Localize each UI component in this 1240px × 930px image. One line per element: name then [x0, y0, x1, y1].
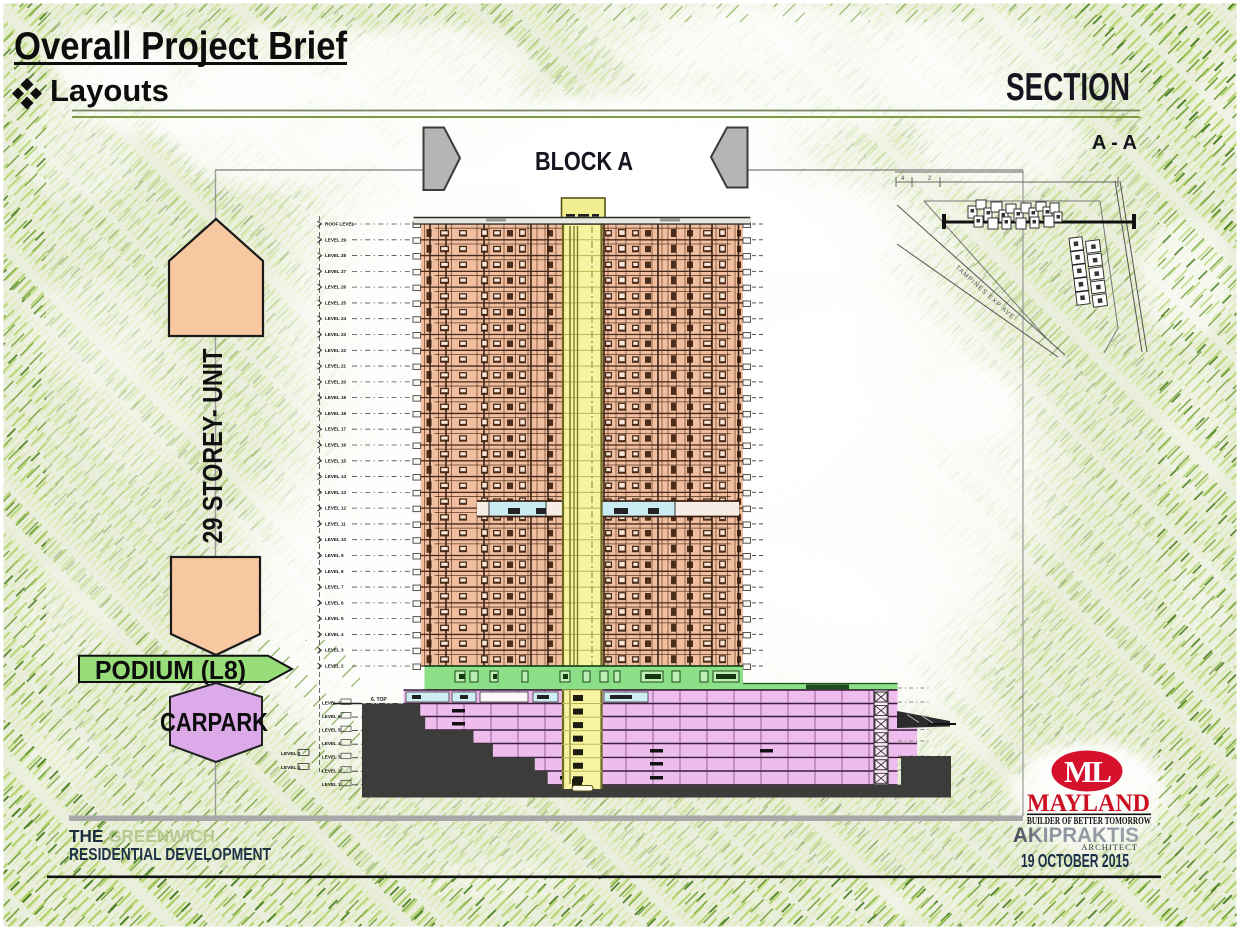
svg-text:LEVEL 4: LEVEL 4: [325, 632, 344, 637]
svg-text:LEVEL 26: LEVEL 26: [325, 285, 347, 290]
svg-text:ML: ML: [1064, 754, 1111, 789]
svg-text:6. TOP: 6. TOP: [371, 697, 387, 703]
svg-text:LEVEL 14: LEVEL 14: [325, 474, 347, 479]
svg-text:LEVEL 12: LEVEL 12: [325, 506, 347, 511]
svg-text:LEVEL 5: LEVEL 5: [325, 616, 344, 621]
svg-text:LEVEL 15: LEVEL 15: [325, 458, 347, 463]
svg-text:MAYLAND: MAYLAND: [1027, 790, 1150, 817]
svg-text:LEVEL 8: LEVEL 8: [325, 569, 344, 574]
svg-text:LEVEL 28: LEVEL 28: [325, 253, 347, 258]
svg-text:LEVEL 5: LEVEL 5: [322, 728, 341, 733]
svg-text:LEVEL 4: LEVEL 4: [322, 741, 341, 746]
svg-text:LEVEL 16: LEVEL 16: [325, 443, 347, 448]
svg-text:LEVEL 11: LEVEL 11: [325, 521, 346, 526]
svg-text:LEVEL 17: LEVEL 17: [325, 427, 347, 432]
svg-text:LEVEL 10: LEVEL 10: [325, 537, 347, 542]
svg-text:LEVEL 13: LEVEL 13: [325, 490, 347, 495]
svg-text:19 OCTOBER 2015: 19 OCTOBER 2015: [1021, 850, 1129, 871]
svg-text:LEVEL 3: LEVEL 3: [322, 755, 341, 760]
svg-text:LEVEL 23: LEVEL 23: [325, 332, 347, 337]
svg-text:LEVEL 25: LEVEL 25: [325, 300, 347, 305]
svg-text:LEVEL 27: LEVEL 27: [325, 269, 347, 274]
svg-text:SECTION: SECTION: [1006, 66, 1130, 109]
svg-text:A - A: A - A: [1092, 132, 1137, 154]
svg-text:LEVEL 7: LEVEL 7: [325, 585, 344, 590]
svg-text:LEVEL 19: LEVEL 19: [325, 395, 347, 400]
svg-text:Overall Project Brief: Overall Project Brief: [14, 25, 348, 68]
svg-text:LEVEL 6: LEVEL 6: [325, 600, 344, 605]
svg-text:LEVEL 20: LEVEL 20: [325, 379, 347, 384]
svg-text:ROOF LEVEL: ROOF LEVEL: [325, 222, 355, 227]
svg-text:Layouts: Layouts: [50, 73, 169, 108]
svg-text:LEVEL 2: LEVEL 2: [322, 768, 341, 773]
svg-text:LEVEL 18: LEVEL 18: [325, 411, 347, 416]
svg-text:LEVEL 29: LEVEL 29: [325, 237, 347, 242]
svg-text:CARPARK: CARPARK: [160, 707, 268, 737]
svg-text:LEVEL 1: LEVEL 1: [322, 782, 341, 787]
svg-text:PODIUM (L8): PODIUM (L8): [95, 655, 246, 685]
svg-text:RESIDENTIAL DEVELOPMENT: RESIDENTIAL DEVELOPMENT: [69, 844, 271, 864]
svg-text:LEVEL 3: LEVEL 3: [325, 648, 344, 653]
svg-text:LEVEL 21: LEVEL 21: [325, 364, 347, 369]
svg-text:LEVEL 6: LEVEL 6: [322, 714, 341, 719]
svg-text:LEVEL 2: LEVEL 2: [325, 664, 344, 669]
svg-text:LEVEL 9: LEVEL 9: [325, 553, 344, 558]
svg-text:LEVEL 22: LEVEL 22: [325, 348, 347, 353]
svg-text:29 STOREY- UNIT: 29 STOREY- UNIT: [197, 349, 228, 544]
svg-text:BLOCK A: BLOCK A: [535, 146, 633, 176]
svg-text:LEVEL 24: LEVEL 24: [325, 316, 347, 321]
svg-text:THE GREENWICH: THE GREENWICH: [69, 826, 215, 846]
